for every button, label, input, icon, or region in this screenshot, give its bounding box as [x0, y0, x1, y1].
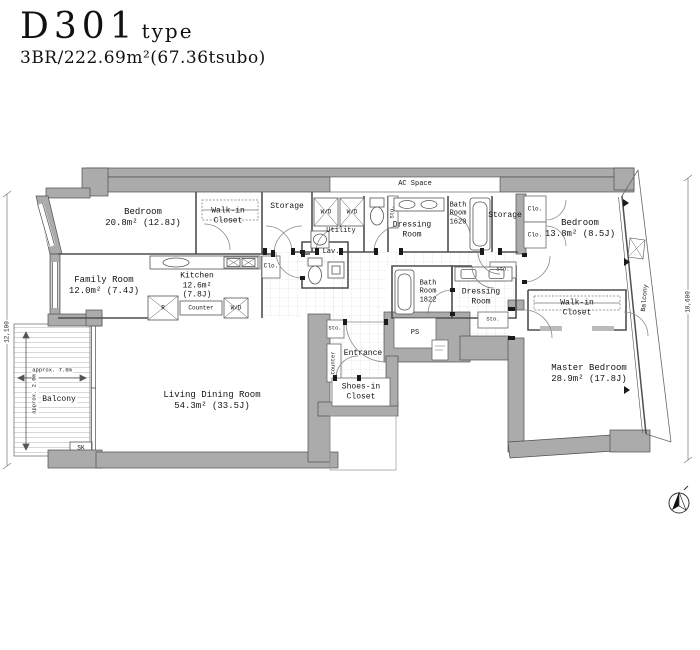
room-label-storage-2: Storage	[488, 211, 522, 221]
sto-label-1: Sto.	[390, 205, 397, 218]
room-label-bathroom-1822: BathRoom1822	[420, 279, 437, 304]
lower-floor-outline	[330, 416, 396, 470]
clo-label-2: Clo.	[528, 231, 542, 238]
room-label-shoes-in-closet: Shoes-inCloset	[342, 382, 380, 401]
room-label-bathroom-1620: BathRoom1620	[450, 201, 467, 226]
room-label-master-bedroom: Master Bedroom28.9m² (17.8J)	[551, 363, 627, 385]
dimension-right-label: 10,600	[684, 290, 691, 314]
room-label-living-dining: Living Dining Room54.3m² (33.5J)	[163, 390, 260, 412]
room-label-family-room: Family Room12.0m² (7.4J)	[69, 275, 139, 297]
dimension-left-label: 12,100	[3, 320, 10, 344]
room-label-entrance: Entrance	[344, 349, 382, 359]
ps-label: PS	[411, 329, 419, 337]
room-label-dressing-1: DressingRoom	[393, 220, 431, 239]
room-label-bedroom-1: Bedroom20.8m² (12.8J)	[105, 207, 181, 229]
room-label-kitchen: Kitchen12.6m²(7.8J)	[180, 272, 214, 301]
wd-label-3: W/D	[231, 304, 242, 311]
sk-label: SK	[77, 444, 84, 451]
sto-label-2: Sto.	[496, 267, 509, 274]
balcony-left-label: Balcony	[41, 395, 77, 405]
room-label-dressing-2: DressingRoom	[462, 287, 500, 306]
room-label-storage-1: Storage	[270, 202, 304, 212]
clo-label-3: Clo.	[264, 262, 278, 269]
ac-space-label: AC Space	[398, 180, 432, 188]
room-label-lavatory: Lav.	[323, 248, 340, 256]
room-label-bedroom-2: Bedroom13.8m² (8.5J)	[545, 218, 615, 240]
refrigerator-label: R	[161, 304, 165, 311]
room-label-utility: Utility	[326, 227, 355, 235]
floor-plan-page: { "header": { "unit_code": "D301", "unit…	[0, 0, 700, 650]
balcony-depth-label: approx. 2.0m	[32, 373, 39, 415]
north-compass-icon	[669, 486, 689, 513]
wd-label-2: W/D	[347, 208, 358, 215]
room-label-walkin-closet-1: Walk-inCloset	[211, 206, 245, 225]
room-label-walkin-closet-2: Walk-inCloset	[560, 298, 594, 317]
wd-label-1: W/D	[321, 208, 332, 215]
entrance-counter-label: Counter	[331, 351, 338, 374]
sto-label-3: Sto.	[486, 317, 499, 324]
kitchen-counter-label: Counter	[188, 304, 213, 311]
floor-plan: AC Space Bedroom20.8m² (12.8J) Walk-inCl…	[0, 0, 700, 650]
floor-plan-drawing	[0, 0, 700, 650]
clo-label-1: Clo.	[528, 205, 542, 212]
sto-label-4: Sto.	[328, 326, 341, 333]
balcony-left-area	[14, 324, 92, 456]
